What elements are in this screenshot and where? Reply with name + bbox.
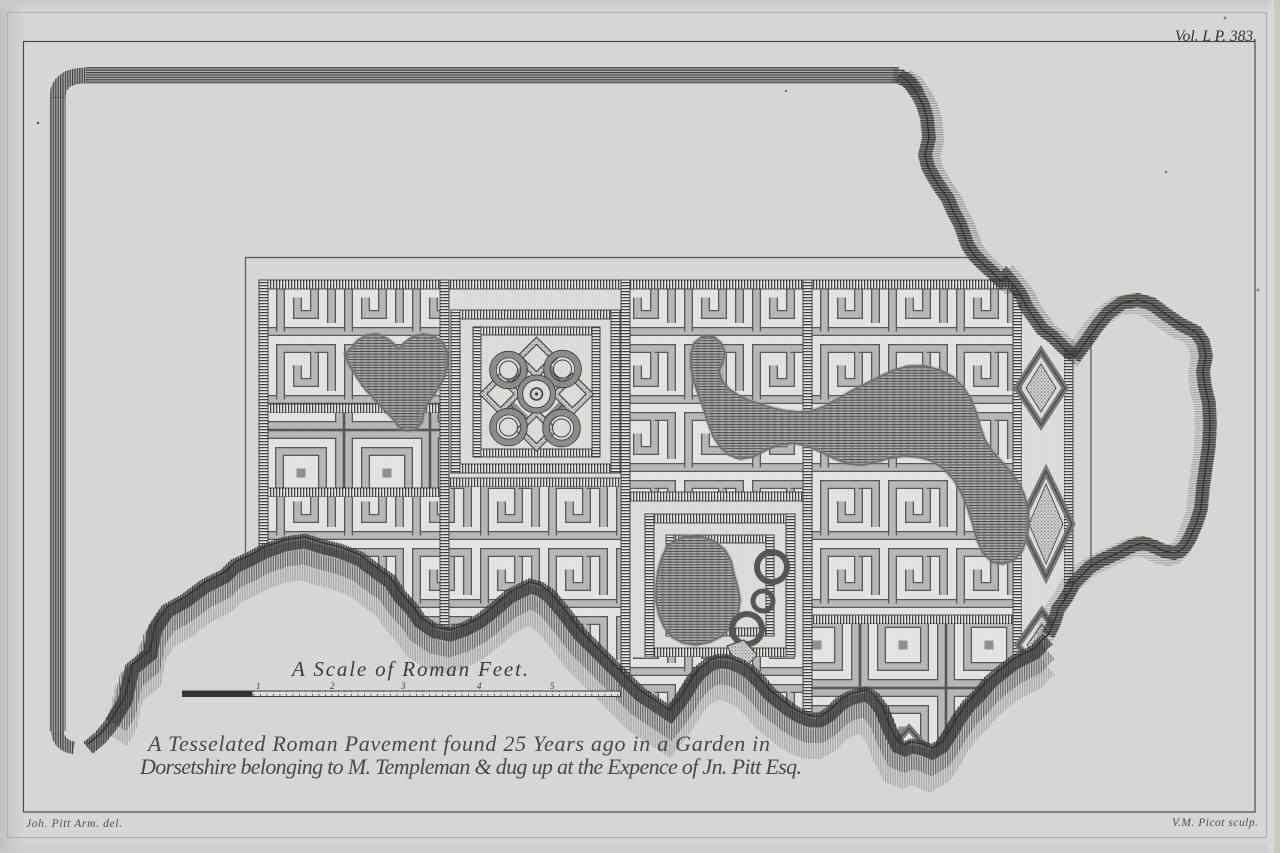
svg-text:A Scale of Roman Feet.: A Scale of Roman Feet. (290, 657, 528, 681)
svg-text:V.M. Picot sculp.: V.M. Picot sculp. (1172, 817, 1258, 829)
svg-text:3: 3 (400, 681, 406, 691)
svg-text:Dorsetshire belonging to M. Te: Dorsetshire belonging to M. Templeman & … (139, 754, 802, 779)
svg-text:Vol. L P. 383.: Vol. L P. 383. (1175, 28, 1257, 45)
svg-text:Joh. Pitt Arm. del.: Joh. Pitt Arm. del. (26, 818, 122, 830)
svg-text:4: 4 (477, 681, 482, 691)
svg-text:6: 6 (618, 681, 623, 691)
svg-text:2: 2 (330, 681, 335, 691)
svg-text:A Tesselated Roman Pavement fo: A Tesselated Roman Pavement found 25 Yea… (146, 731, 770, 756)
svg-text:5: 5 (550, 681, 555, 691)
svg-text:1: 1 (256, 681, 261, 691)
